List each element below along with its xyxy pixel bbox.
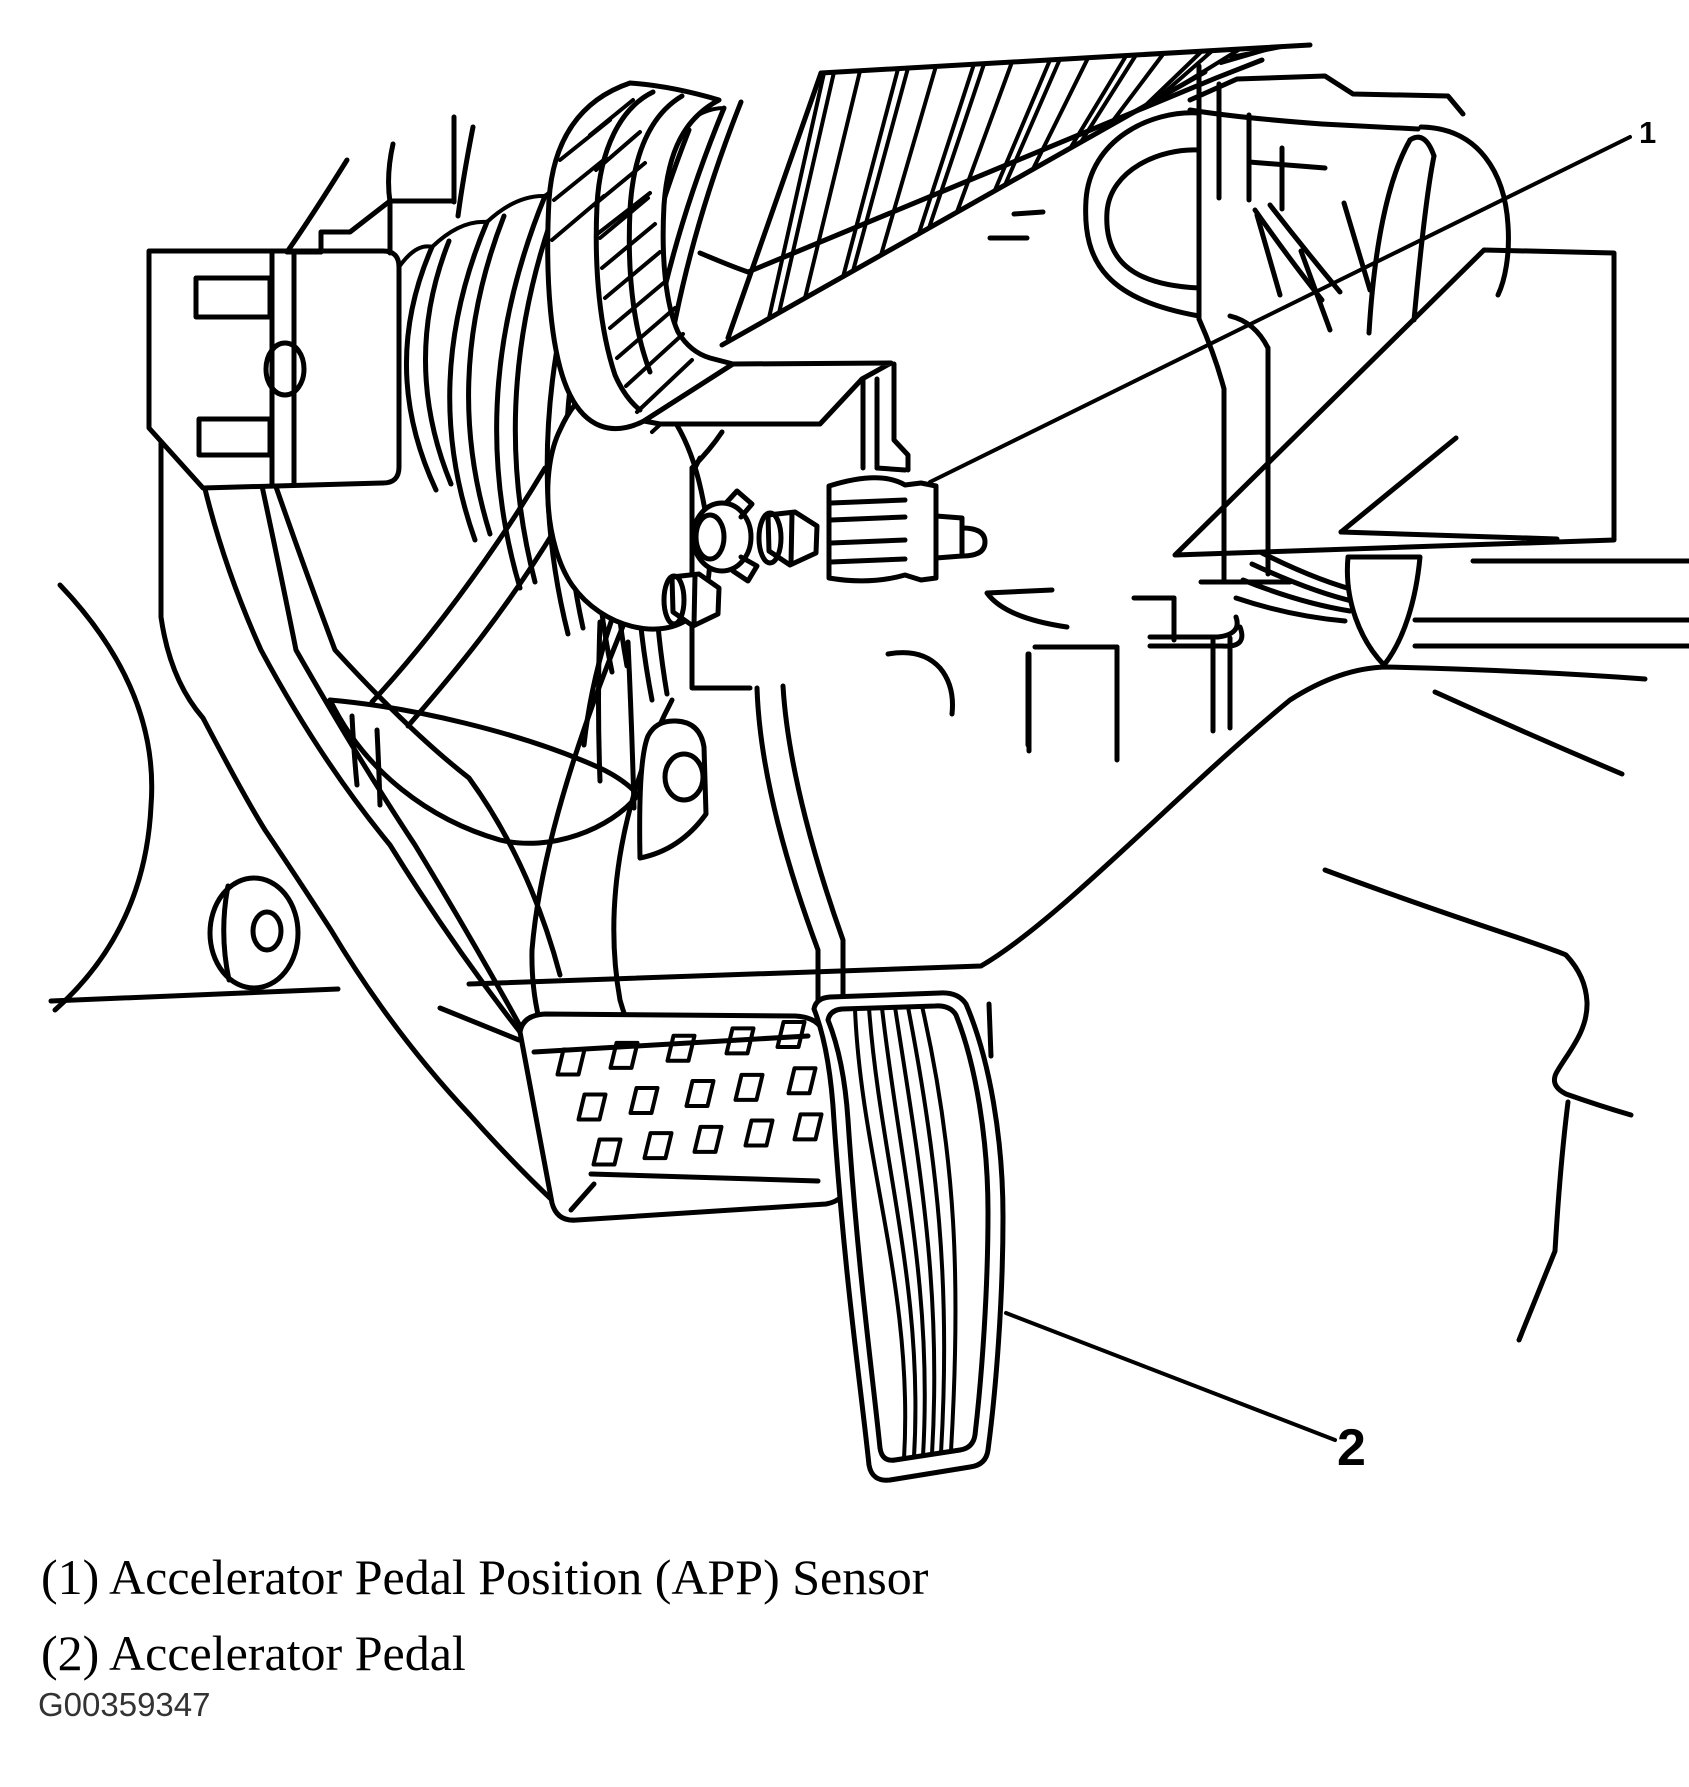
svg-text:G00359347: G00359347 (38, 1686, 211, 1723)
svg-text:2: 2 (1337, 1419, 1366, 1477)
svg-text:(1) Accelerator Pedal Position: (1) Accelerator Pedal Position (APP) Sen… (41, 1549, 929, 1605)
svg-text:(2) Accelerator Pedal: (2) Accelerator Pedal (41, 1625, 466, 1681)
svg-text:1: 1 (1639, 115, 1656, 150)
